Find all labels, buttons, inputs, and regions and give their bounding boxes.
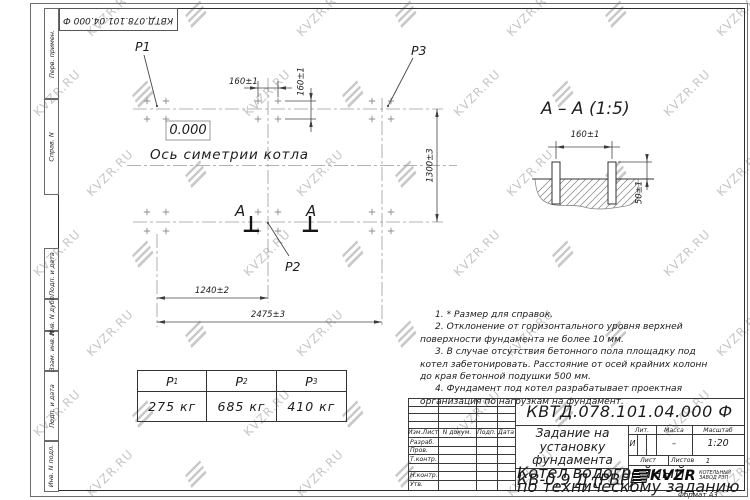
margin-cell-podp-data-1: Подп. и дата bbox=[44, 248, 59, 300]
section-view-title: А – А (1:5) bbox=[541, 99, 630, 119]
tb-scale-label: Масштаб bbox=[692, 427, 744, 434]
margin-cell-vzam-inv: Взам. инв. N bbox=[44, 330, 59, 372]
load-table: P1 P2 P3 275 кг 685 кг 410 кг bbox=[137, 370, 347, 422]
section-dim-width: 160±1 bbox=[570, 130, 600, 140]
top-doc-number: КВТД.078.101.04.000 Ф bbox=[63, 15, 173, 25]
technical-notes: 1. * Размер для справок. 2. Отклонение о… bbox=[420, 309, 718, 408]
margin-cell-sprav-n: Справ. N bbox=[44, 98, 59, 195]
tb-product-description: Котел водогрейный КВ-0,9 Д (РВР) по техн… bbox=[517, 469, 628, 490]
dim-1240: 1240±2 bbox=[189, 286, 235, 296]
boiler-symmetry-axis-caption: Ось симетрии котла bbox=[150, 147, 309, 163]
tb-sheets-label: Листов bbox=[671, 457, 694, 464]
tb-col-izm-list: Изм.Лист bbox=[408, 429, 438, 436]
tb-row-prov: Пров. bbox=[410, 447, 428, 454]
margin-cell-inv-podl: Инв. N подл. bbox=[44, 440, 59, 492]
tb-row-razrab: Разраб. bbox=[410, 439, 434, 446]
tb-col-podp: Подп. bbox=[476, 429, 497, 436]
margin-cell-inv-dubl: Инв. N дубл. bbox=[44, 298, 59, 332]
tb-lit-value: И bbox=[625, 439, 640, 448]
tb-drawing-title: Задание на установку фундамента bbox=[517, 427, 628, 468]
note-2: 2. Отклонение от горизонтального уровня … bbox=[420, 321, 718, 346]
note-4: 4. Фундамент под котел разрабатывает про… bbox=[420, 383, 718, 408]
tb-lit-label: Лит. bbox=[628, 427, 656, 434]
dim-160-side: 160±1 bbox=[297, 67, 308, 97]
top-doc-number-stamp: КВТД.078.101.04.000 Ф bbox=[59, 8, 178, 31]
dim-2475: 2475±3 bbox=[245, 310, 291, 320]
section-letter-right: А bbox=[306, 202, 316, 220]
tb-mass-label: Масса bbox=[656, 427, 692, 434]
load-point-p1-label: P1 bbox=[135, 39, 151, 54]
tb-sheets-value: 1 bbox=[698, 457, 718, 465]
tb-row-utv: Утв. bbox=[410, 481, 423, 488]
tb-col-n-dokum: N докум. bbox=[438, 429, 476, 436]
section-letter-left: А bbox=[235, 202, 245, 220]
margin-cell-perv-primen: Перв. примен. bbox=[44, 8, 59, 100]
note-3: 3. В случае отсутствия бетонного пола пл… bbox=[420, 346, 718, 383]
load-table-value-p3: 410 кг bbox=[277, 392, 346, 421]
tb-row-nkontr: Н.контр. bbox=[410, 472, 438, 479]
tb-sheet-label: Лист bbox=[628, 457, 668, 464]
tb-col-data: Дата bbox=[497, 429, 515, 436]
dim-1300: 1300±3 bbox=[426, 149, 437, 183]
level-mark: 0.000 bbox=[166, 123, 210, 138]
load-table-value-p1: 275 кг bbox=[138, 392, 207, 421]
load-point-p3-label: P3 bbox=[411, 43, 427, 58]
kvzr-logo-text: KVZR bbox=[650, 468, 696, 484]
load-point-p2-label: P2 bbox=[285, 259, 301, 274]
note-1: 1. * Размер для справок. bbox=[420, 309, 718, 321]
tb-mass-value: – bbox=[656, 439, 692, 448]
tb-row-tkontr: Т.контр. bbox=[410, 456, 437, 463]
load-table-header-p1: P1 bbox=[138, 371, 207, 392]
title-block: Изм.Лист N докум. Подп. Дата Разраб. Про… bbox=[408, 398, 744, 490]
tb-scale-value: 1:20 bbox=[692, 438, 744, 449]
format-label: Формат А3 bbox=[678, 491, 718, 499]
dim-160-top: 160±1 bbox=[229, 77, 258, 87]
drawing-sheet: KVZR.RUKVZR.RUKVZR.RUKVZR.RUKVZR.RUKVZR.… bbox=[0, 0, 750, 500]
kvzr-logo-caption: КОТЕЛЬНЫЙ ЗАВОД РЭП bbox=[699, 471, 731, 482]
section-dim-height: 50±1 bbox=[635, 178, 646, 208]
kvzr-logo-icon bbox=[630, 469, 649, 483]
load-table-header-p2: P2 bbox=[207, 371, 276, 392]
margin-cell-podp-data-2: Подп. и дата bbox=[44, 370, 59, 442]
load-table-value-p2: 685 кг bbox=[207, 392, 276, 421]
load-table-header-p3: P3 bbox=[277, 371, 346, 392]
kvzr-logo: KVZR КОТЕЛЬНЫЙ ЗАВОД РЭП bbox=[632, 468, 742, 484]
